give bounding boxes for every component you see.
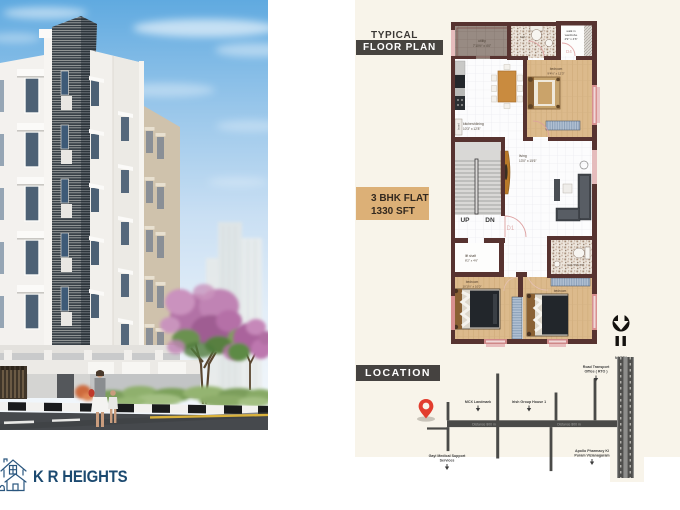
svg-text:Distance 800 m: Distance 800 m: [557, 422, 581, 426]
svg-text:living: living: [519, 154, 527, 158]
svg-text:bedroom: bedroom: [466, 280, 479, 284]
svg-text:board: board: [457, 123, 461, 130]
svg-text:D1: D1: [507, 226, 515, 232]
svg-text:Road Transport: Road Transport: [583, 365, 610, 369]
svg-text:bath: bath: [520, 35, 526, 39]
svg-text:MCX Landmark: MCX Landmark: [465, 400, 491, 404]
svg-text:4'9" x 4'6": 4'9" x 4'6": [564, 37, 577, 41]
svg-text:Apollo Pharmacy Kl: Apollo Pharmacy Kl: [575, 449, 609, 453]
svg-text:bedroom: bedroom: [550, 67, 563, 71]
svg-text:Gayi Medical Support: Gayi Medical Support: [429, 454, 467, 458]
svg-text:bath 5'6"x4'6": bath 5'6"x4'6": [567, 263, 584, 267]
svg-text:Distance 800 m: Distance 800 m: [472, 422, 496, 426]
svg-text:Puram Vizianagaram: Puram Vizianagaram: [574, 454, 609, 458]
svg-text:7'10½" x 4'0": 7'10½" x 4'0": [473, 44, 491, 48]
svg-text:9'4½" x 12'3": 9'4½" x 12'3": [547, 72, 564, 76]
svg-text:Irish Group House 1: Irish Group House 1: [512, 400, 546, 404]
svg-text:DN: DN: [485, 217, 495, 224]
svg-text:13'0" x 15'6": 13'0" x 15'6": [519, 159, 536, 163]
svg-text:8'2" x 4'6": 8'2" x 4'6": [465, 259, 478, 263]
svg-text:bedroom: bedroom: [554, 289, 567, 293]
svg-text:utility: utility: [478, 39, 486, 43]
svg-text:10'3" x 12'8": 10'3" x 12'8": [463, 127, 480, 131]
svg-text:Services: Services: [440, 459, 455, 463]
svg-text:kitchen/dining: kitchen/dining: [463, 122, 484, 126]
svg-text:10'1½" x 10'0": 10'1½" x 10'0": [463, 285, 482, 289]
svg-text:D4: D4: [566, 49, 572, 54]
svg-text:Office ( RTO ): Office ( RTO ): [584, 370, 608, 374]
svg-text:lift shaft: lift shaft: [465, 254, 476, 258]
svg-text:UP: UP: [460, 217, 470, 224]
